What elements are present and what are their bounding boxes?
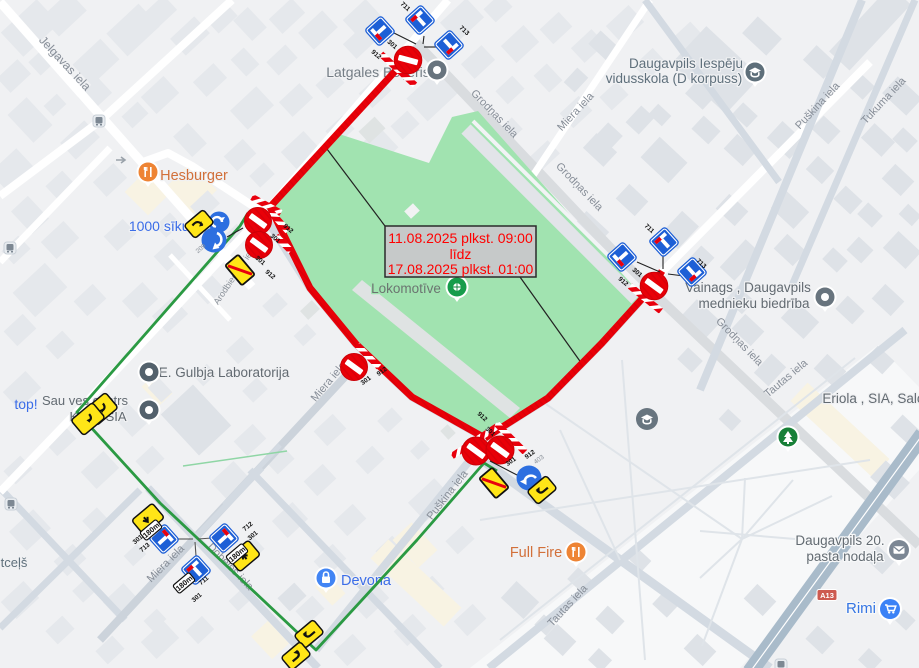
- svg-text:vidusskola (D korpuss): vidusskola (D korpuss): [606, 71, 743, 86]
- svg-text:mednieku biedrība: mednieku biedrība: [698, 296, 810, 311]
- svg-text:Hesburger: Hesburger: [160, 168, 228, 184]
- svg-text:A13: A13: [820, 591, 834, 600]
- svg-text:E. Gulbja Laboratorija: E. Gulbja Laboratorija: [159, 365, 290, 380]
- svg-text:tceļš: tceļš: [1, 555, 28, 570]
- svg-text:līdz: līdz: [450, 246, 472, 262]
- svg-text:Vainags , Daugavpils: Vainags , Daugavpils: [685, 280, 811, 295]
- svg-text:Lokomotīve: Lokomotīve: [371, 281, 441, 296]
- svg-text:pasta nodaļa: pasta nodaļa: [806, 549, 884, 564]
- svg-text:Daugavpils Iespēju: Daugavpils Iespēju: [629, 56, 743, 71]
- svg-text:Daugavpils 20.: Daugavpils 20.: [795, 533, 884, 548]
- svg-text:Full Fire: Full Fire: [510, 545, 562, 561]
- svg-text:top!: top!: [14, 396, 37, 412]
- svg-text:17.08.2025 plkst. 01:00: 17.08.2025 plkst. 01:00: [388, 261, 534, 277]
- svg-text:11.08.2025 plkst. 09:00: 11.08.2025 plkst. 09:00: [388, 230, 533, 246]
- svg-text:Eriola , SIA, Salc: Eriola , SIA, Salc: [822, 391, 919, 406]
- svg-text:Rimi: Rimi: [846, 600, 876, 617]
